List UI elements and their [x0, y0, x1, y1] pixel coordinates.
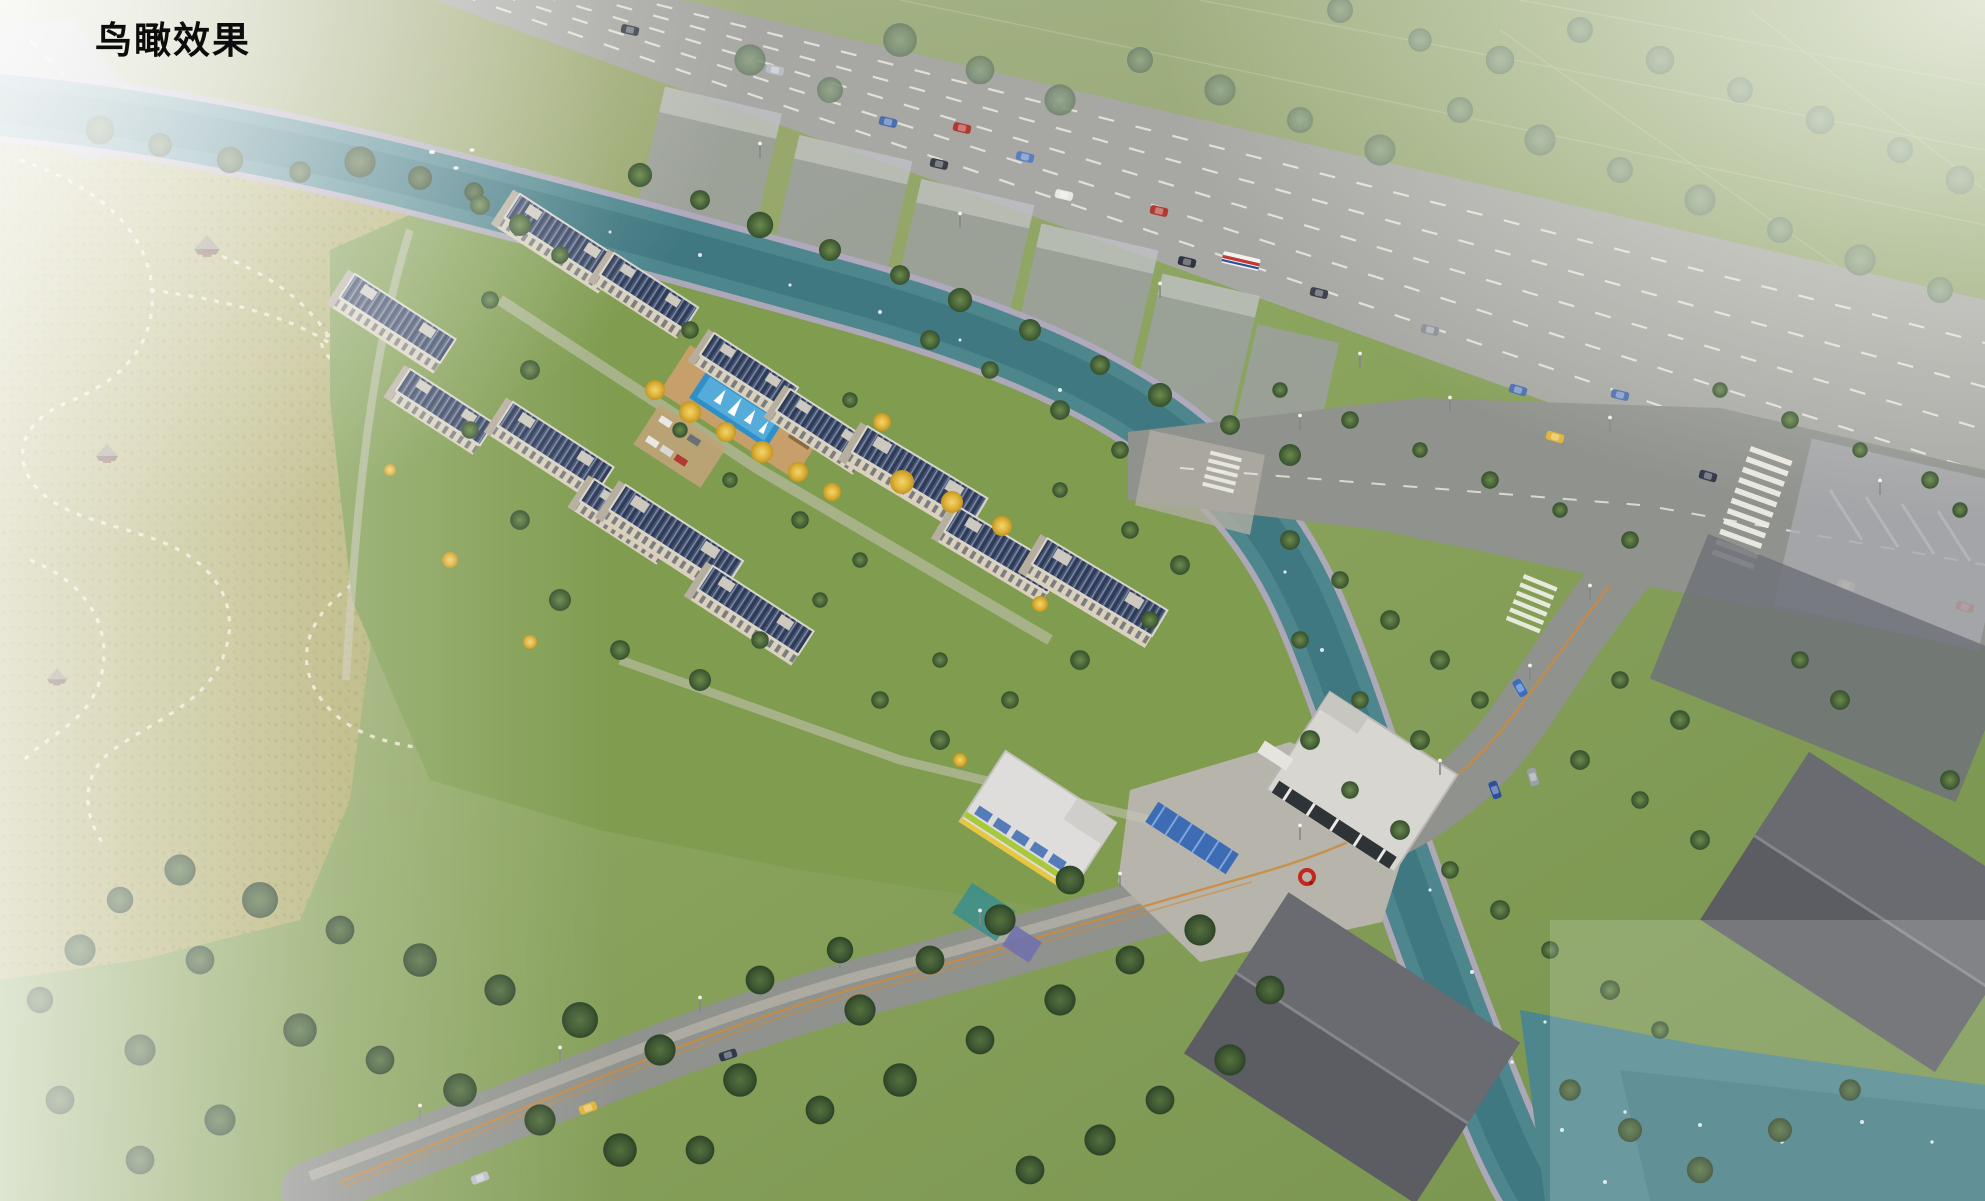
- aerial-render-canvas: 鸟瞰效果: [0, 0, 1985, 1201]
- aerial-render-scene: [0, 0, 1985, 1201]
- page-title: 鸟瞰效果: [95, 10, 251, 64]
